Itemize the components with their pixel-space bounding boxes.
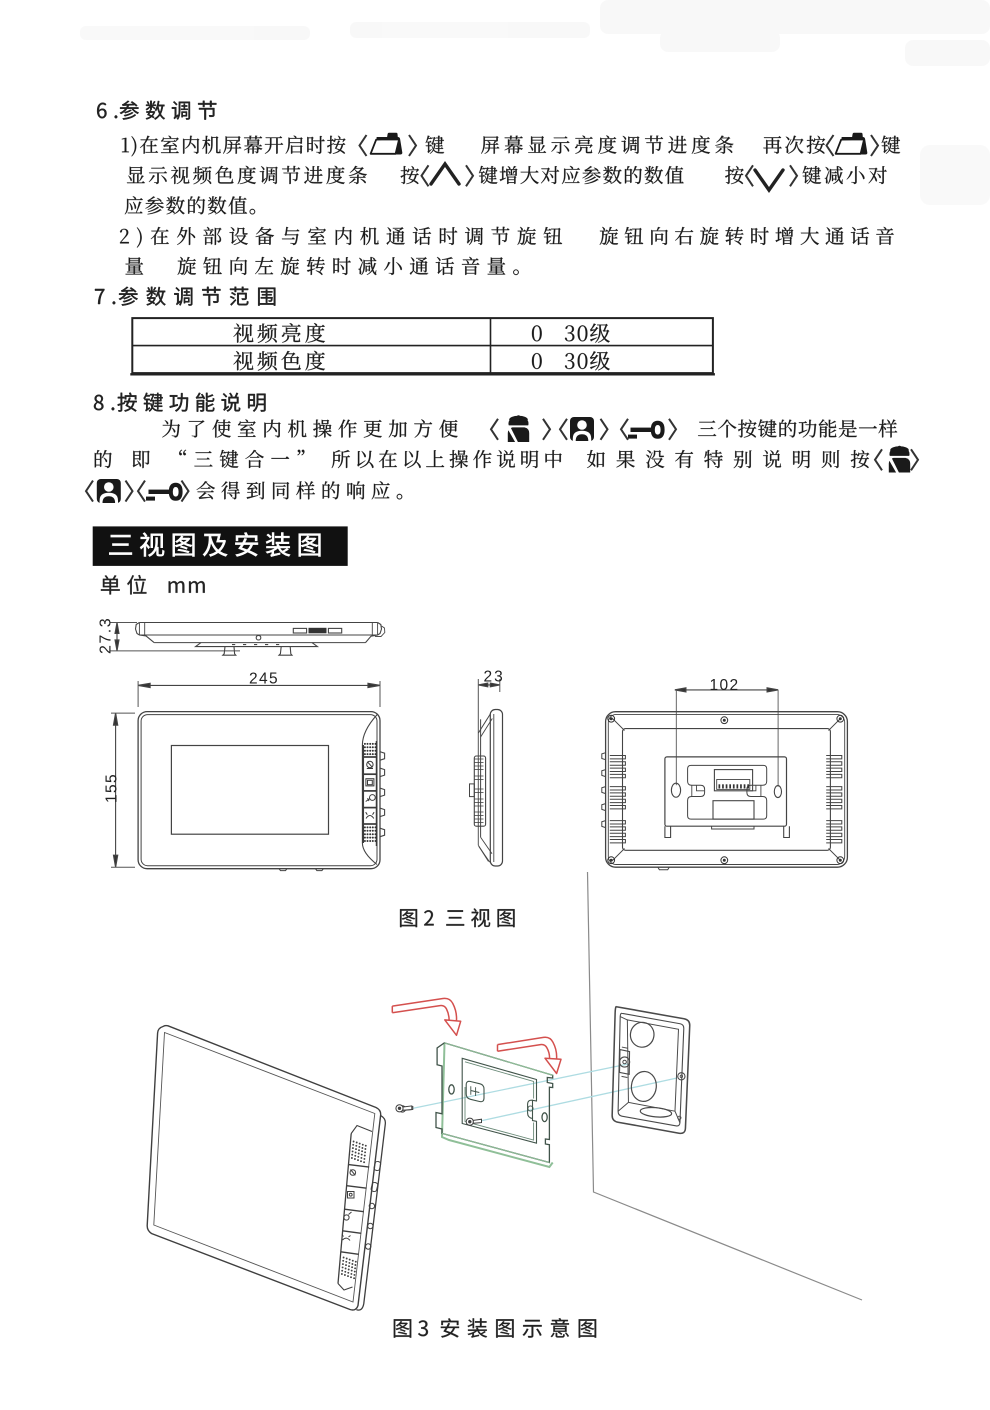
svg-text:155: 155 [104, 773, 121, 803]
svg-text:23: 23 [484, 669, 505, 686]
svg-text:245: 245 [249, 671, 279, 688]
svg-text:102: 102 [710, 677, 740, 694]
svg-text:27.3: 27.3 [98, 617, 115, 654]
